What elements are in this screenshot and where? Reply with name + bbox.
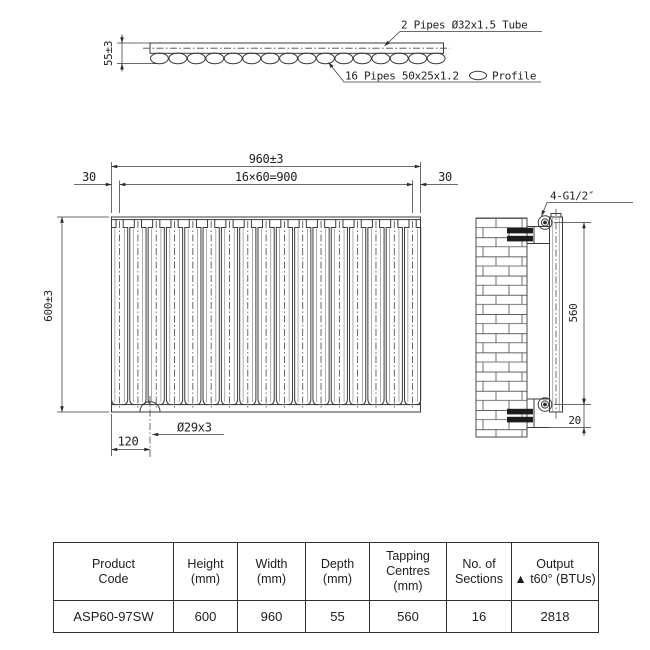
anchor-bolt [507,236,533,242]
dimension-tapping-offset: 120 [112,414,151,456]
col-header-tapping-centres: TappingCentres(mm) [370,543,447,601]
cell-tapping-centres: 560 [370,601,447,633]
dimension-depth: 55±3 [102,35,157,72]
col-header-sections: No. ofSections [447,543,512,601]
dimension-tapping-centres: 560 [554,223,591,405]
margin-left-label: 30 [82,170,96,184]
side-profile-tube [550,209,563,419]
col-header-height: Height(mm) [174,543,238,601]
profile-label-right: Profile [492,70,536,83]
bottom-offset-label: 20 [568,414,581,427]
overall-width-label: 960±3 [249,152,284,166]
oval-pipe-row [150,53,445,64]
cell-width: 960 [238,601,306,633]
spec-table: ProductCode Height(mm) Width(mm) Depth(m… [53,542,599,633]
cell-product-code: ASP60-97SW [54,601,174,633]
anchor-bolt [507,417,533,423]
col-header-depth: Depth(mm) [306,543,370,601]
annotation-connections: 4-G1/2″ [542,190,634,217]
height-dim-label: 600±3 [42,290,55,322]
top-view: 55±3 2 Pipes Ø32x1.5 Tube 16 Pipes 50x25… [102,19,542,83]
brick-wall [476,218,527,437]
dimension-margin-right: 30 [421,170,459,185]
radiator-technical-drawing: 55±3 2 Pipes Ø32x1.5 Tube 16 Pipes 50x25… [0,0,650,650]
cell-depth: 55 [306,601,370,633]
top-rail [112,217,421,220]
cell-height: 600 [174,601,238,633]
oval-profile-icon [470,71,487,79]
tapping-centres-label: 560 [567,304,580,323]
vertical-tube-array [112,220,421,409]
dimension-tube-pitch: 16×60=900 [120,170,413,213]
tube-label: 2 Pipes Ø32x1.5 Tube [401,19,527,32]
depth-dim-label: 55±3 [102,41,115,66]
profile-label-left: 16 Pipes 50x25x1.2 [345,70,459,83]
annotation-hole: Ø29x3 [153,421,225,435]
col-header-width: Width(mm) [238,543,306,601]
table-data-row: ASP60-97SW 600 960 55 560 16 2818 [54,601,599,633]
table-header-row: ProductCode Height(mm) Width(mm) Depth(m… [54,543,599,601]
hole-dim-label: Ø29x3 [177,421,212,435]
anchor-bolt [507,409,533,415]
cell-sections: 16 [447,601,512,633]
margin-right-label: 30 [438,170,452,184]
front-view: 960±3 16×60=900 30 30 600±3 [42,152,458,457]
annotation-profile: 16 Pipes 50x25x1.2 Profile [329,63,542,83]
side-view: 4-G1/2″ 560 20 [476,190,633,438]
drawing-area: 55±3 2 Pipes Ø32x1.5 Tube 16 Pipes 50x25… [0,0,650,535]
anchor-bolt [507,228,533,234]
annotation-tube: 2 Pipes Ø32x1.5 Tube [385,19,543,47]
tapping-offset-label: 120 [118,435,139,449]
col-header-product-code: ProductCode [54,543,174,601]
dimension-margin-left: 30 [74,170,112,185]
col-header-output: Output▲ t60° (BTUs) [512,543,599,601]
connections-label: 4-G1/2″ [550,190,594,203]
cell-output: 2818 [512,601,599,633]
dimension-height: 600±3 [42,217,109,412]
tube-pitch-label: 16×60=900 [235,170,297,184]
